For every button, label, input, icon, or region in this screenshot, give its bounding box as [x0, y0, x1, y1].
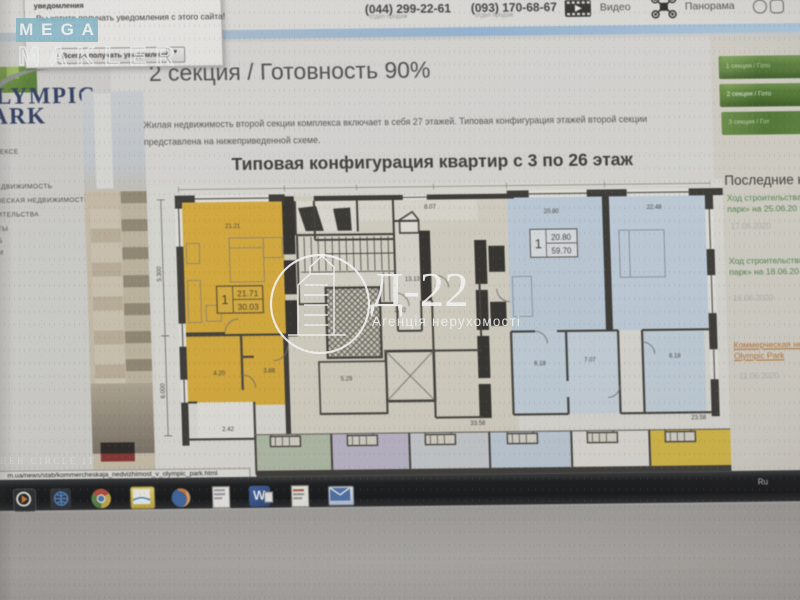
svg-text:Агенція нерухомості: Агенція нерухомості — [372, 314, 521, 329]
svg-text:Д-22: Д-22 — [370, 262, 469, 317]
